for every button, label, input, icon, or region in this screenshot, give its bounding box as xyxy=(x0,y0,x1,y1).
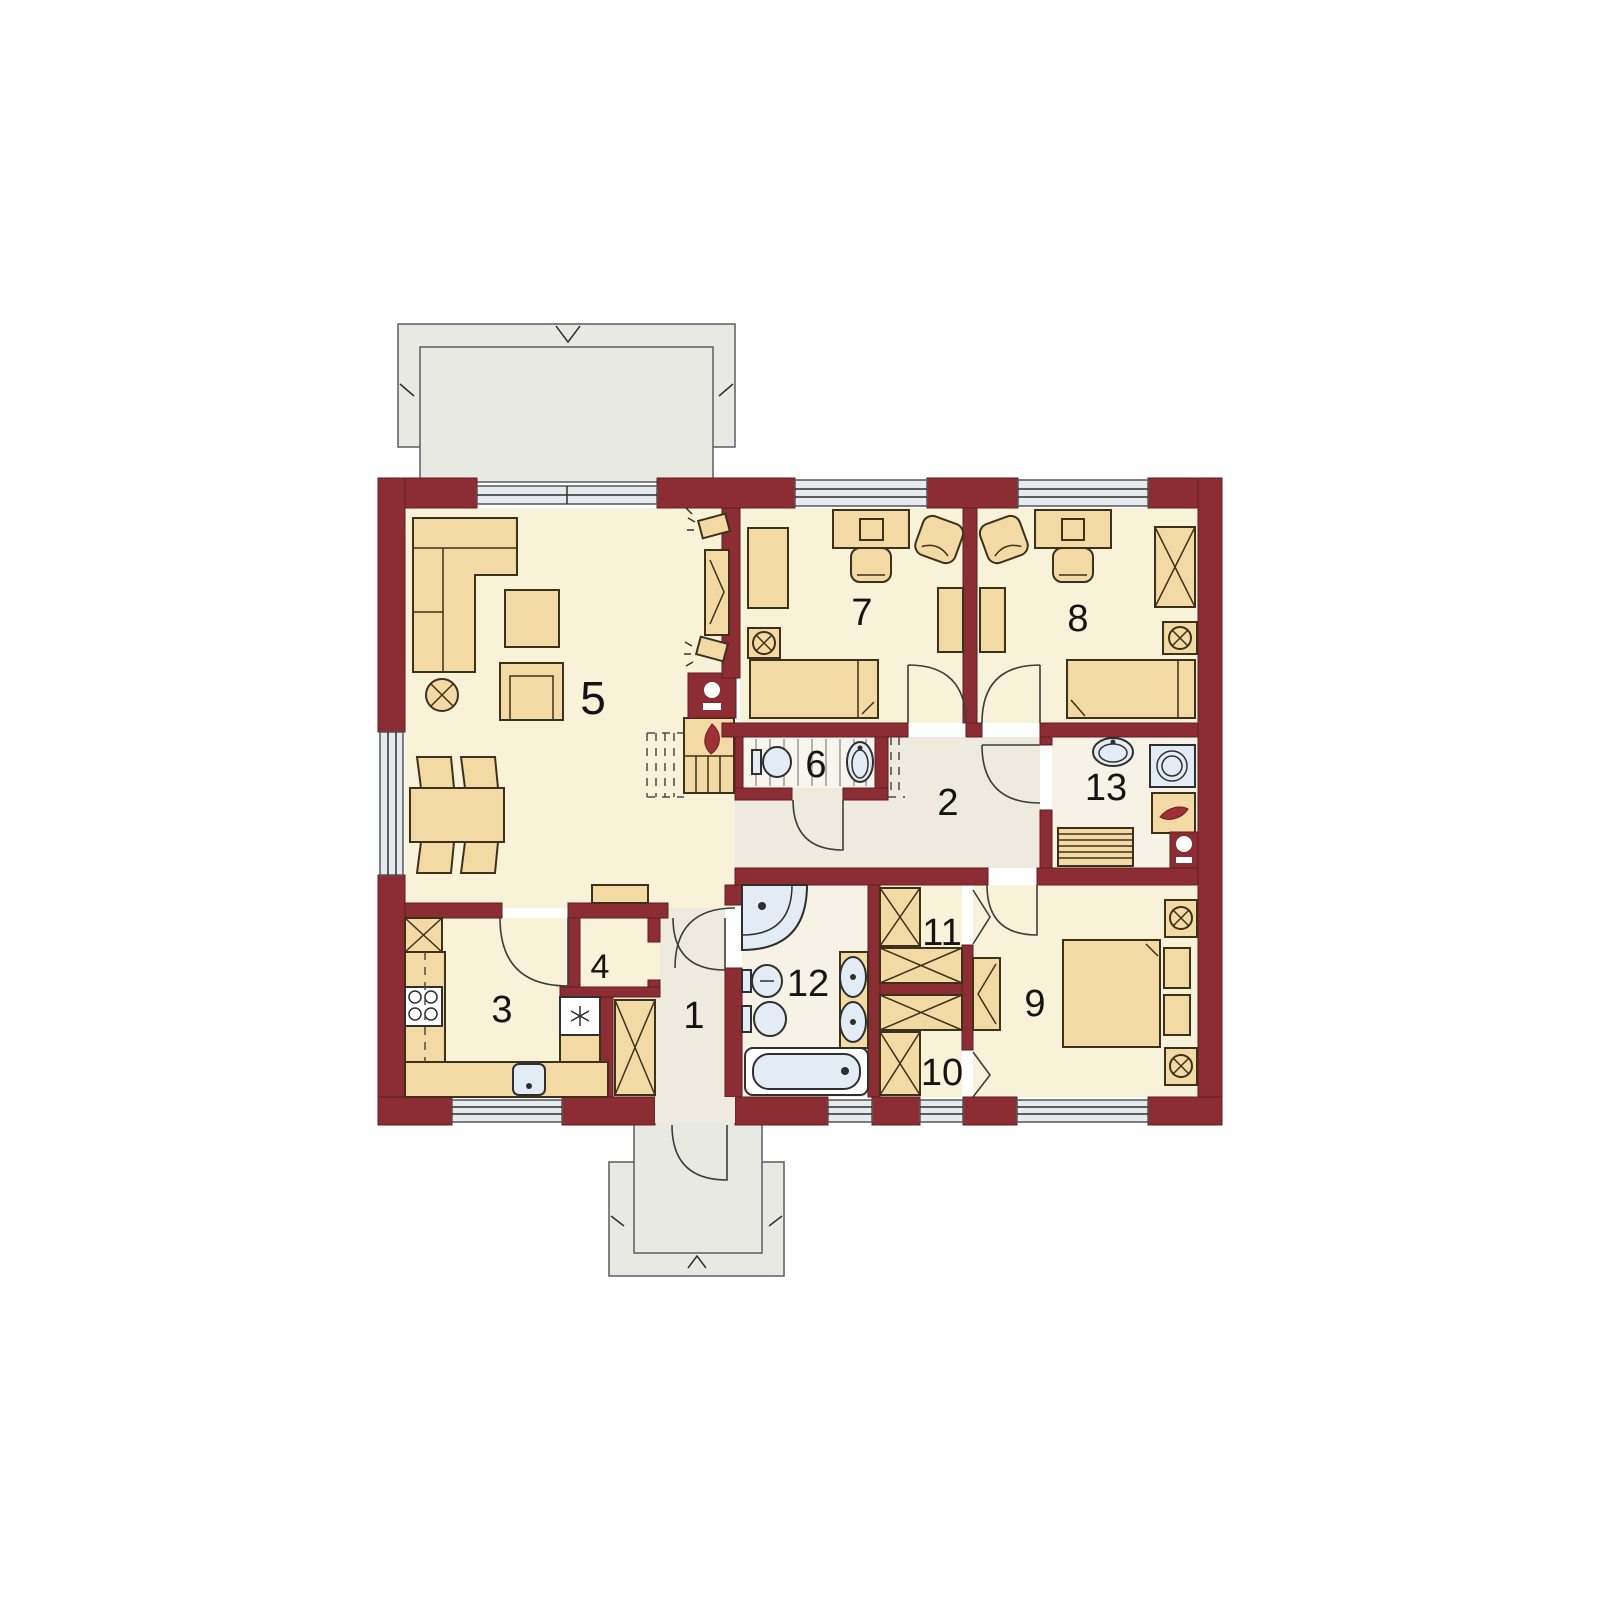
desk-chair xyxy=(1053,548,1093,582)
window-icon xyxy=(380,732,403,875)
wardrobe-icon xyxy=(1155,527,1195,607)
window-icon xyxy=(795,480,927,506)
terrace-sliding-door-icon xyxy=(477,486,657,504)
entry-porch xyxy=(609,1122,784,1276)
pantry-label: 4 xyxy=(591,948,610,986)
armchair xyxy=(500,663,563,720)
boiler xyxy=(1152,793,1195,833)
bathtub-icon xyxy=(745,1048,868,1095)
sideboard xyxy=(592,885,648,903)
room8-label: 8 xyxy=(1067,598,1088,640)
dining-table xyxy=(410,788,504,842)
washbasin-icon xyxy=(847,742,873,782)
closet10-label: 10 xyxy=(921,1052,963,1094)
floor-plan-canvas: 5 7 xyxy=(0,0,1600,1600)
nightstand-lamp-icon xyxy=(748,628,780,658)
monitor-icon xyxy=(1062,519,1084,540)
pantry-floor xyxy=(568,918,660,997)
cabinet-icon xyxy=(405,918,442,952)
nightstand-lamp-icon xyxy=(1165,900,1197,937)
stove-icon xyxy=(405,987,442,1026)
dressing-table-mirror-icon xyxy=(973,958,1000,1030)
toilet-icon xyxy=(752,747,791,777)
floor-plan-page: 5 7 xyxy=(0,0,1600,1600)
nightstand-lamp-icon xyxy=(1163,622,1197,654)
washbasin-icon xyxy=(1093,738,1133,766)
window-icon xyxy=(920,1100,963,1122)
tv-unit xyxy=(705,550,729,635)
window-icon xyxy=(1018,480,1148,506)
desk-chair xyxy=(851,548,891,582)
kitchen-counter-bottom xyxy=(405,1062,608,1097)
washing-machine-icon xyxy=(1150,745,1195,787)
chair xyxy=(461,842,498,873)
terrace xyxy=(398,324,735,482)
plant-lamp-icon xyxy=(426,679,458,711)
bathroom-label: 12 xyxy=(787,963,829,1005)
window-icon xyxy=(1017,1100,1148,1122)
cabinet xyxy=(980,588,1005,652)
wardrobe-icon xyxy=(880,995,962,1030)
porch-floor xyxy=(634,1122,762,1253)
chimney-icon xyxy=(1170,832,1198,868)
wall-room7-room8 xyxy=(963,508,977,723)
pillow xyxy=(1164,995,1190,1035)
kitchen-counter-right xyxy=(560,1035,600,1062)
cabinet xyxy=(938,588,963,652)
wardrobe-icon xyxy=(880,1032,920,1095)
bidet-icon xyxy=(742,965,782,997)
room7-label: 7 xyxy=(851,592,872,634)
chimney-flue-icon xyxy=(704,682,720,698)
monitor-icon xyxy=(860,519,883,540)
chimney-block xyxy=(688,673,736,718)
coffee-table xyxy=(505,590,559,647)
chair xyxy=(417,757,454,788)
toilet-icon xyxy=(742,1002,786,1036)
radiator-icon xyxy=(1058,828,1133,866)
hallway: 2 xyxy=(937,782,958,824)
kitchen-sink-icon xyxy=(513,1064,545,1095)
closet11-label: 11 xyxy=(922,912,961,954)
pillow xyxy=(1164,948,1190,988)
wardrobe-icon xyxy=(880,888,920,946)
wardrobe-icon xyxy=(615,1000,655,1095)
wardrobe xyxy=(748,528,788,608)
bed xyxy=(750,660,878,718)
wc-label: 6 xyxy=(805,744,826,786)
fridge-freezer-icon xyxy=(560,997,600,1035)
window-icon xyxy=(452,1100,562,1122)
terrace-floor xyxy=(420,347,713,482)
window-icon xyxy=(828,1100,872,1122)
nightstand-lamp-icon xyxy=(1165,1048,1197,1085)
chair xyxy=(417,842,454,873)
room5-label: 5 xyxy=(580,672,606,724)
bedroom9-label: 9 xyxy=(1024,983,1045,1025)
chair xyxy=(461,757,498,788)
utility-label: 13 xyxy=(1085,767,1127,809)
bed xyxy=(1067,660,1195,718)
kitchen-label: 3 xyxy=(491,989,512,1031)
hall-label: 2 xyxy=(937,782,958,824)
double-sink-counter xyxy=(840,952,868,1048)
chimney-vent-icon xyxy=(703,703,721,710)
entry-label: 1 xyxy=(683,995,704,1037)
